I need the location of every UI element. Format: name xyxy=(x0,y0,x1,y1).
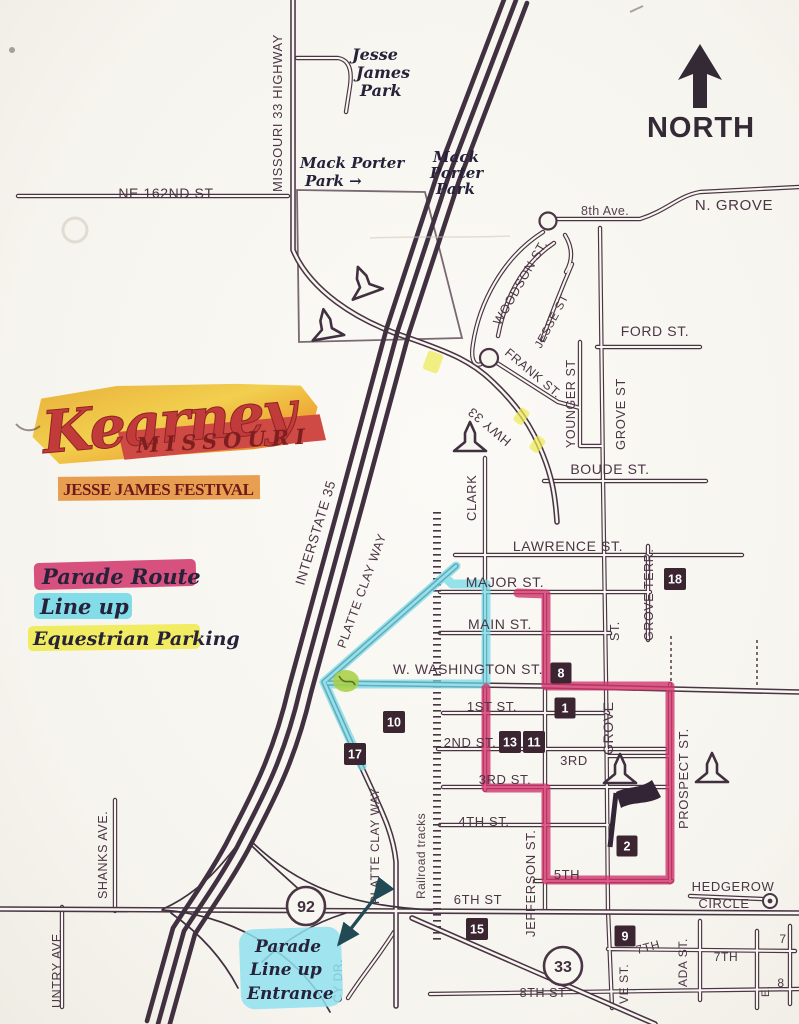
street-label-2nd: 2ND ST. xyxy=(444,735,497,750)
svg-text:1: 1 xyxy=(562,702,569,716)
note-mack-porter-east-3: Park xyxy=(435,180,475,198)
north-compass: NORTH xyxy=(647,44,755,144)
street-label-younger: YOUNGER ST xyxy=(564,359,578,448)
street-label-major: MAJOR ST. xyxy=(466,574,545,590)
street-label-washington: W. WASHINGTON ST. xyxy=(393,661,543,677)
cul-de-sac-frank xyxy=(480,349,498,367)
street-label-1st: 1ST ST. xyxy=(467,699,517,714)
svg-text:17: 17 xyxy=(348,748,362,762)
marker-badge-13: 13 xyxy=(499,731,521,753)
street-label-edge-7: 7 xyxy=(779,932,786,946)
street-labels: NE 162ND ST 8th Ave. N. GROVE MISSOURI 3… xyxy=(50,34,787,1008)
logo-festival: JESSE JAMES FESTIVAL xyxy=(63,480,255,499)
street-label-lawrence: LAWRENCE ST. xyxy=(513,538,623,554)
note-jesse-james-park-3: Park xyxy=(359,81,401,100)
street-label-jefferson: JEFFERSON ST. xyxy=(523,830,538,937)
street-label-3rd: 3RD ST. xyxy=(479,772,532,787)
route-92-label: 92 xyxy=(297,899,315,916)
street-label-ada: ADA ST. xyxy=(676,938,690,987)
route-33-label: 33 xyxy=(554,959,572,976)
marker-badge-2: 2 xyxy=(617,836,638,857)
street-label-railroad-tracks: Railroad tracks xyxy=(414,813,428,899)
note-mack-porter-west-1: Mack Porter xyxy=(299,154,405,172)
svg-text:9: 9 xyxy=(622,930,629,944)
street-label-jesse-st: JESSE ST xyxy=(533,293,571,351)
marker-badge-17: 17 xyxy=(344,743,366,765)
hedgerow-circle-icon xyxy=(763,894,777,908)
street-label-shanks: SHANKS AVE. xyxy=(96,811,110,899)
marker-badge-10: 10 xyxy=(383,711,405,733)
street-label-main: MAIN ST. xyxy=(468,616,532,632)
map-legend: Parade Route Line up Equestrian Parking xyxy=(28,559,240,651)
svg-text:13: 13 xyxy=(503,736,517,750)
street-label-ne162: NE 162ND ST xyxy=(118,185,213,201)
legend-equestrian-parking: Equestrian Parking xyxy=(32,628,240,650)
svg-text:11: 11 xyxy=(527,736,540,750)
marker-badge-8: 8 xyxy=(551,663,572,684)
street-label-edge-e: E. xyxy=(760,985,772,997)
street-label-8th-ave: 8th Ave. xyxy=(581,204,629,218)
street-label-grove-st-upper: GROVE ST xyxy=(613,378,628,450)
street-label-ford: FORD ST. xyxy=(621,323,690,339)
street-label-7th-a: 7TH xyxy=(634,937,661,957)
street-label-6th: 6TH ST xyxy=(454,892,502,907)
church-icon xyxy=(343,261,383,299)
scanned-festival-map: 92 33 18 8 1 13 11 10 17 2 15 9 NORTH NE… xyxy=(0,0,799,1024)
street-label-n-grove: N. GROVE xyxy=(695,197,773,214)
note-mack-porter-west-2: Park → xyxy=(304,172,362,190)
marker-badge-9: 9 xyxy=(615,926,636,947)
street-label-grove-lower: GROVE xyxy=(600,701,616,755)
marker-badge-1: 1 xyxy=(555,698,576,719)
north-label: NORTH xyxy=(647,112,755,144)
marker-badge-11: 11 xyxy=(523,731,545,753)
svg-text:2: 2 xyxy=(624,840,631,854)
street-label-prospect: PROSPECT ST. xyxy=(676,728,691,829)
north-arrow-icon xyxy=(678,44,722,108)
street-label-clark: CLARK xyxy=(464,475,479,521)
street-label-hedgerow-2: CIRCLE xyxy=(698,896,749,911)
note-entrance-2: Line up xyxy=(249,960,322,980)
entrance-arrow xyxy=(339,899,374,944)
svg-text:10: 10 xyxy=(387,716,401,730)
legend-line-up: Line up xyxy=(39,594,129,619)
route-92-shield: 92 xyxy=(287,887,325,925)
note-jesse-james-park-1: Jesse xyxy=(349,45,398,64)
green-marker xyxy=(333,670,359,692)
note-jesse-james-park-2: James xyxy=(353,63,410,82)
marker-badge-15: 15 xyxy=(466,918,488,940)
street-label-hedgerow-1: HEDGEROW xyxy=(692,879,775,894)
note-entrance-1: Parade xyxy=(254,937,321,957)
svg-text:18: 18 xyxy=(668,573,682,587)
route-33-shield: 33 xyxy=(544,947,582,985)
street-label-7th-b: 7TH xyxy=(714,950,738,964)
road-dashed-stubs xyxy=(671,636,757,686)
svg-text:8: 8 xyxy=(558,667,565,681)
svg-text:15: 15 xyxy=(470,923,484,937)
cul-de-sac-8th-ave xyxy=(540,213,557,230)
street-label-4th: 4TH ST. xyxy=(458,814,509,829)
street-label-platte-clay-south: PLATTE CLAY WAY xyxy=(368,788,382,904)
street-label-missouri-33-highway: MISSOURI 33 HIGHWAY xyxy=(270,34,285,192)
church-icon xyxy=(696,753,728,782)
street-label-5th: 5TH xyxy=(554,867,580,882)
festival-logo: Kearney MISSOURI JESSE JAMES FESTIVAL xyxy=(31,377,327,501)
street-label-ve-st: VE ST. xyxy=(617,964,631,1004)
street-label-boude: BOUDE ST. xyxy=(570,461,649,477)
street-label-untry-ave: UNTRY AVE. xyxy=(50,929,64,1008)
street-label-8th: 8TH ST xyxy=(520,986,567,1000)
church-icon xyxy=(308,306,345,340)
map-canvas: 92 33 18 8 1 13 11 10 17 2 15 9 NORTH NE… xyxy=(0,0,799,1024)
note-entrance-3: Entrance xyxy=(246,984,334,1004)
street-label-3rd-short: 3RD xyxy=(560,753,588,768)
street-label-edge-8: 8 xyxy=(777,976,784,990)
marker-badge-18: 18 xyxy=(664,568,686,590)
street-label-grove-terr: GROVE TERR. xyxy=(642,549,656,642)
legend-parade-route: Parade Route xyxy=(41,564,201,589)
street-label-grove-st-part: ST. xyxy=(608,621,622,641)
